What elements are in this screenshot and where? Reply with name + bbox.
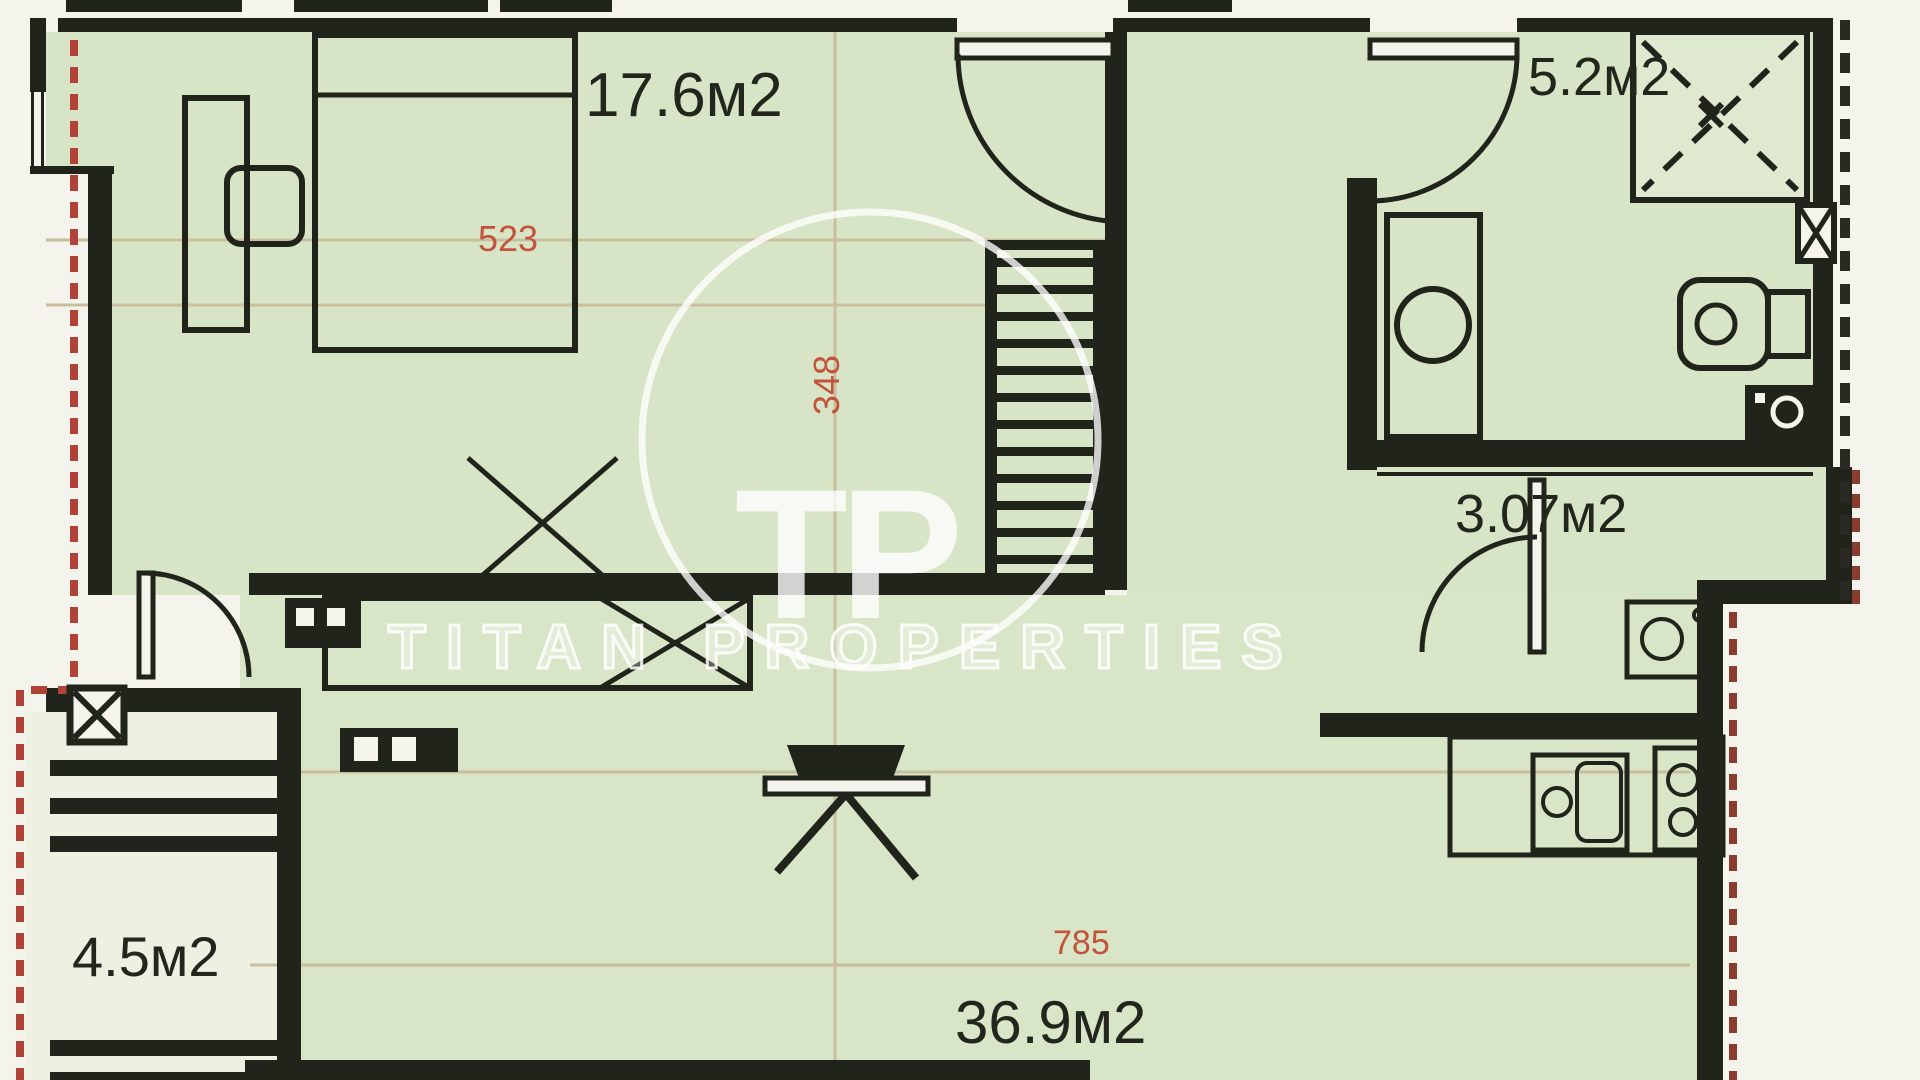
window-band-top-3 <box>500 0 612 12</box>
window-left-sill <box>30 166 114 174</box>
window-band-top-4 <box>1128 0 1232 12</box>
room-area-label-shower-room: 5.2м2 <box>1528 46 1670 108</box>
column-marker-terrace <box>70 688 124 742</box>
wall-shower-bottom <box>1347 440 1833 467</box>
dimension-label-523: 523 <box>478 218 538 260</box>
tv-stand-bar <box>765 778 928 794</box>
room-area-label-bedroom: 17.6м2 <box>585 60 783 131</box>
tv-screen <box>787 745 905 778</box>
appliance-block-2 <box>340 728 458 772</box>
wall-bedroom-living <box>249 573 1105 595</box>
watermark-brand-text: TITAN PROPERTIES <box>388 612 1508 683</box>
room-area-label-terrace: 4.5м2 <box>72 924 220 989</box>
wall-left-lower <box>88 174 112 595</box>
wall-bottom-band <box>245 1060 1090 1080</box>
window-left-inner-line <box>41 92 44 168</box>
wall-left-upper <box>30 18 46 92</box>
door-leaf-shower-room <box>1370 40 1517 58</box>
wall-top-middle <box>1113 18 1370 32</box>
washing-machine <box>1745 385 1830 440</box>
room-area-label-living-kitchen: 36.9м2 <box>955 988 1146 1057</box>
window-band-top-2 <box>294 0 488 12</box>
stair-rail-left <box>985 240 997 592</box>
dimension-label-785: 785 <box>1053 924 1110 963</box>
door-leaf-hall <box>957 40 1113 58</box>
wall-shower-left <box>1347 178 1377 470</box>
floor-plan-screenshot: TP 17.6м2 5.2м2 3.07м2 4.5м2 36.9м2 523 … <box>0 0 1920 1080</box>
wall-kitchen-corridor <box>1320 713 1723 737</box>
floor-plan-drawing: TP <box>0 0 1920 1080</box>
bedroom-floor-lower <box>112 174 1105 595</box>
wall-terrace-right <box>277 688 301 1080</box>
window-left-outer-line <box>31 92 34 168</box>
wall-shower-bottom-line <box>1377 472 1813 476</box>
wall-top-left <box>58 18 957 32</box>
appliance-block-1 <box>285 598 361 648</box>
dimension-label-348: 348 <box>806 355 848 415</box>
door-leaf-bedroom <box>139 573 153 677</box>
column-marker-right-wall <box>1798 205 1834 261</box>
room-area-label-corridor: 3.07м2 <box>1455 483 1627 545</box>
wall-hall-right <box>1105 32 1127 590</box>
window-band-top-1 <box>66 0 242 12</box>
stair-top-edge <box>985 240 1105 250</box>
